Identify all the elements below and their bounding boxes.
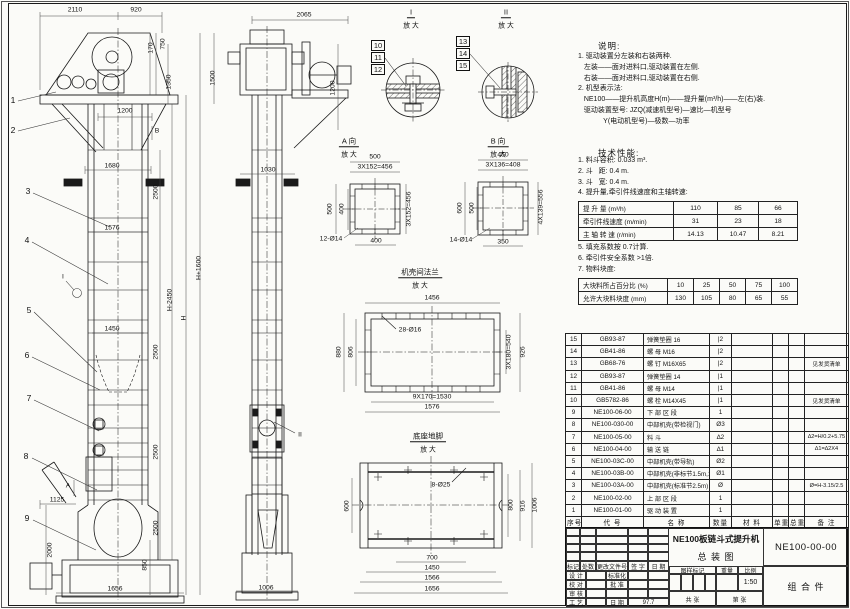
label-sign: 签 字	[628, 561, 648, 571]
dim-label: 1450	[104, 327, 119, 334]
stamp-cell	[693, 574, 705, 591]
title-block: 标记 处数 更改文件号 签 字 日 期 设 计 标准化 校 对 批 准 审 核 …	[565, 527, 848, 606]
dim-label: H	[182, 316, 189, 321]
bom-qty: 1	[710, 407, 732, 419]
bom-code: NE100-030-00	[582, 419, 644, 431]
dim-label: 1125	[50, 498, 65, 505]
row-label: 提 升 量 (m³/h)	[579, 202, 674, 215]
bom-remark	[805, 407, 849, 419]
bom-qty: Ø3	[710, 419, 732, 431]
dim-label: 2110	[68, 8, 83, 15]
bom-name: 弹簧垫圈 16	[644, 334, 710, 346]
dim-label: 1680	[104, 164, 119, 171]
sign-cell	[606, 589, 628, 598]
bom-row: 13 GB68-76 螺 钉 M16X65 |2 见发货清单	[566, 358, 849, 370]
sign-cell	[628, 589, 648, 598]
lump-size-row: 大块料所占百分比 (%) 10 25 50 75 100	[579, 279, 798, 292]
bom-row: 6 NE100-04-00 输 送 链 ∆1 ∆1=∆2X4	[566, 443, 849, 455]
bom-code: NE100-04-00	[582, 443, 644, 455]
dim-label: 1200	[117, 109, 132, 116]
dim-label: H+1600	[197, 256, 204, 280]
dim-label: 放 大	[498, 24, 513, 31]
bom-total-weight	[789, 334, 805, 346]
dim-label: 1576	[104, 226, 119, 233]
callout-box-number: 15	[456, 60, 470, 71]
bom-name: 螺 钉 M16X65	[644, 358, 710, 370]
bom-no: 10	[566, 394, 582, 406]
sign-cell	[648, 580, 669, 589]
bom-name: 螺 母 M14	[644, 382, 710, 394]
sign-cell	[628, 580, 648, 589]
label-check: 校 对	[566, 580, 586, 589]
bom-material	[732, 394, 773, 406]
dim-label: 800	[509, 499, 516, 510]
drawing-sheet: 2110920170750135015001200B168025001576H+…	[0, 0, 850, 609]
tech-item: 6. 牵引件安全系数 >1倍.	[578, 254, 844, 265]
bom-total-weight	[789, 492, 805, 504]
detail-i-view	[381, 58, 445, 122]
dim-label: 850	[143, 559, 150, 570]
bom-remark	[805, 492, 849, 504]
bom-row: 11 GB41-86 螺 母 M14 |1	[566, 382, 849, 394]
balloon-number: 8	[24, 452, 29, 461]
rev-cell	[580, 552, 596, 561]
balloon-number: 7	[27, 394, 32, 403]
bom-total-weight	[789, 468, 805, 480]
value-cell: 80	[720, 292, 746, 305]
note-line: Y(电动机型号)—极数—功率	[578, 117, 844, 128]
dim-label: 920	[130, 8, 141, 15]
bom-material	[732, 358, 773, 370]
dim-label: 450	[497, 153, 508, 160]
bom-no: 13	[566, 358, 582, 370]
dim-label: 1500	[211, 70, 218, 85]
row-label: 牵引件线速度 (m/min)	[579, 215, 674, 228]
bom-remark: ∆1=∆2X4	[805, 443, 849, 455]
bom-no: 2	[566, 492, 582, 504]
dim-label: 600	[345, 500, 352, 511]
rev-cell	[596, 552, 628, 561]
view-label: I	[407, 8, 415, 18]
label-approve: 批 准	[606, 580, 628, 589]
bom-unit-weight	[773, 407, 789, 419]
casing-flange-view	[358, 306, 508, 400]
row-label: 大块料所占百分比 (%)	[579, 279, 668, 292]
value-cell: 100	[772, 279, 798, 292]
dim-label: 3X152=456	[407, 192, 414, 227]
dim-label: 1200	[331, 80, 338, 95]
bom-code: GB93-87	[582, 370, 644, 382]
dim-label: A	[66, 484, 71, 491]
dim-label: 1576	[424, 405, 439, 412]
bom-unit-weight	[773, 455, 789, 467]
bom-unit-weight	[773, 346, 789, 358]
dim-label: 2500	[154, 184, 161, 199]
callout-box-number: 14	[456, 48, 470, 59]
dim-label: 916	[521, 500, 528, 511]
dim-label: 500	[470, 202, 477, 213]
dim-label: 1566	[424, 576, 439, 583]
bom-total-weight	[789, 407, 805, 419]
dim-label: 3X180=540	[507, 335, 514, 370]
rev-cell	[596, 536, 628, 544]
bom-qty: |2	[710, 358, 732, 370]
dim-label: B	[155, 129, 160, 136]
bom-unit-weight	[773, 419, 789, 431]
bom-total-weight	[789, 455, 805, 467]
bom-row: 4 NE100-03B-00 中部机壳(非标节1.5m,1m) Ø1	[566, 468, 849, 480]
bom-total-weight	[789, 346, 805, 358]
bom-code: GB68-76	[582, 358, 644, 370]
bom-name: 中部机壳(带检视门)	[644, 419, 710, 431]
callout-box-number: 10	[371, 40, 385, 51]
bom-unit-weight	[773, 443, 789, 455]
front-elevation-view	[30, 28, 184, 603]
rev-cell	[566, 544, 580, 552]
bom-code: NE100-03C-00	[582, 455, 644, 467]
scale-value: 1:50	[738, 574, 763, 591]
dim-label: 350	[497, 240, 508, 247]
bom-total-weight	[789, 382, 805, 394]
label-sheets: 共 张	[669, 591, 716, 607]
dim-label: 1656	[424, 587, 439, 594]
value-cell: 105	[694, 292, 720, 305]
balloon-number: 6	[25, 351, 30, 360]
bom-remark: 见发货清单	[805, 358, 849, 370]
bom-total-weight	[789, 504, 805, 516]
bom-total-weight	[789, 394, 805, 406]
value-cell: 14.13	[674, 228, 718, 241]
value-cell: 130	[668, 292, 694, 305]
value-cell: 85	[718, 202, 759, 215]
note-line: 2. 机型表示法:	[578, 84, 844, 95]
callout-box-number: 11	[371, 52, 385, 63]
dim-label: 4X139=556	[539, 190, 546, 225]
dim-label: 500	[328, 203, 335, 214]
label-change-doc: 更改文件号	[596, 561, 628, 571]
bom-name: 弹簧垫圈 14	[644, 370, 710, 382]
dim-label: 806	[349, 346, 356, 357]
bom-unit-weight	[773, 394, 789, 406]
dim-label: 600	[458, 202, 465, 213]
bom-remark	[805, 370, 849, 382]
dim-label: 2065	[296, 13, 311, 20]
capacity-row: 主 轴 转 速 (r/min) 14.13 10.47 8.21	[579, 228, 798, 241]
bom-unit-weight	[773, 504, 789, 516]
dim-label: I	[62, 275, 64, 282]
tech-item: 2. 斗 距: 0.4 m.	[578, 167, 844, 178]
bom-qty: |1	[710, 394, 732, 406]
drawing-number: NE100-00-00	[763, 528, 849, 566]
dim-label: 28-Ø16	[399, 328, 422, 335]
stamp-cell	[681, 574, 693, 591]
bom-no: 6	[566, 443, 582, 455]
bom-row: 8 NE100-030-00 中部机壳(带检视门) Ø3	[566, 419, 849, 431]
bom-row: 14 GB41-86 螺 母 M16 |2	[566, 346, 849, 358]
bom-row: 1 NE100-01-00 驱 动 装 置 1	[566, 504, 849, 516]
bom-no: 12	[566, 370, 582, 382]
label-stamp: 图样标记	[669, 566, 716, 574]
label-audit: 审 核	[566, 589, 586, 598]
rev-cell	[628, 552, 648, 561]
value-cell: 8.21	[759, 228, 798, 241]
bom-row: 7 NE100-05-00 料 斗 ∆2 ∆2=H/0.2+5.75	[566, 431, 849, 443]
balloon-number: 4	[25, 236, 30, 245]
bom-unit-weight	[773, 370, 789, 382]
bom-total-weight	[789, 419, 805, 431]
sign-cell	[648, 589, 669, 598]
label-craft: 工 艺	[566, 598, 586, 607]
bom-no: 11	[566, 382, 582, 394]
dim-label: 14-Ø14	[450, 238, 473, 245]
rev-cell	[628, 544, 648, 552]
bom-no: 15	[566, 334, 582, 346]
bom-code: NE100-05-00	[582, 431, 644, 443]
bom-no: 7	[566, 431, 582, 443]
bom-qty: |2	[710, 334, 732, 346]
bom-qty: Ø	[710, 480, 732, 492]
bom-no: 9	[566, 407, 582, 419]
bom-name: 料 斗	[644, 431, 710, 443]
bom-code: NE100-03A-00	[582, 480, 644, 492]
bom-total-weight	[789, 370, 805, 382]
label-design: 设 计	[566, 571, 586, 580]
bom-name: 上 部 区 段	[644, 492, 710, 504]
bom-code: GB41-86	[582, 382, 644, 394]
bom-material	[732, 370, 773, 382]
bom-row: 3 NE100-03A-00 中部机壳(标准节2.5m) Ø Ø=H-3.15/…	[566, 480, 849, 492]
bom-remark	[805, 382, 849, 394]
capacity-table: 提 升 量 (m³/h) 110 85 66 牵引件线速度 (m/min) 31…	[578, 201, 798, 241]
sign-cell	[586, 580, 606, 589]
bom-code: NE100-06-00	[582, 407, 644, 419]
dim-label: 8-Ø25	[432, 483, 451, 490]
tech-item: 1. 料斗容积: 0.033 m³.	[578, 156, 844, 167]
detail-ii-view	[478, 62, 538, 122]
bom-material	[732, 480, 773, 492]
bom-code: NE100-01-00	[582, 504, 644, 516]
label-standardization: 标准化	[606, 571, 628, 580]
dim-label: 9X170=1530	[413, 395, 452, 402]
notes-heading: 说明:	[598, 40, 620, 52]
note-line: 1. 驱动装置分左装和右装两种.	[578, 52, 844, 63]
bom-name: 螺 母 M16	[644, 346, 710, 358]
dim-label: 1456	[424, 296, 439, 303]
value-cell: 23	[718, 215, 759, 228]
bom-qty: |1	[710, 382, 732, 394]
bom-qty: Ø1	[710, 468, 732, 480]
bom-remark	[805, 334, 849, 346]
value-cell: 110	[674, 202, 718, 215]
value-cell: 31	[674, 215, 718, 228]
bom-name: 下 部 区 段	[644, 407, 710, 419]
bom-code: GB93-87	[582, 334, 644, 346]
capacity-row: 牵引件线速度 (m/min) 31 23 18	[579, 215, 798, 228]
bom-total-weight	[789, 480, 805, 492]
bom-no: 14	[566, 346, 582, 358]
rev-cell	[566, 552, 580, 561]
dim-label: 2500	[154, 520, 161, 535]
rev-cell	[648, 528, 669, 536]
note-line: 右装——面对进料口,驱动装置在右侧.	[578, 74, 844, 85]
sign-cell	[586, 571, 606, 580]
dim-label: 2500	[154, 344, 161, 359]
product-name: NE100板链斗式提升机	[669, 530, 763, 548]
rev-cell	[596, 528, 628, 536]
label-count: 处数	[580, 561, 596, 571]
view-label: 机壳间法兰	[398, 268, 442, 278]
label-scale: 比例	[738, 566, 763, 574]
dim-label: 750	[161, 38, 168, 49]
balloon-number: 3	[26, 187, 31, 196]
bom-no: 8	[566, 419, 582, 431]
bom-name: 中部机壳(标准节2.5m)	[644, 480, 710, 492]
bom-material	[732, 468, 773, 480]
dim-label: 1006	[533, 497, 540, 512]
dim-label: 3X136=408	[486, 163, 521, 170]
bom-code: GB5782-86	[582, 394, 644, 406]
dim-label: 926	[521, 346, 528, 357]
dim-label: 2000	[48, 542, 55, 557]
rev-cell	[648, 544, 669, 552]
value-cell: 66	[759, 202, 798, 215]
bom-material	[732, 419, 773, 431]
value-cell: 65	[746, 292, 772, 305]
value-cell: 75	[746, 279, 772, 292]
dim-label: 放 大	[420, 448, 435, 455]
sign-cell	[628, 571, 648, 580]
bom-unit-weight	[773, 480, 789, 492]
bom-remark	[805, 419, 849, 431]
bom-name: 中部机壳(非标节1.5m,1m)	[644, 468, 710, 480]
label-date: 日 期	[648, 561, 669, 571]
callout-box-number: 13	[456, 36, 470, 47]
balloon-number: 1	[11, 96, 16, 105]
bom-no: 1	[566, 504, 582, 516]
stamp-cell	[705, 574, 716, 591]
bom-qty: Ø2	[710, 455, 732, 467]
dim-label: 700	[426, 556, 437, 563]
bom-unit-weight	[773, 334, 789, 346]
row-label: 主 轴 转 速 (r/min)	[579, 228, 674, 241]
dim-label: 放 大	[403, 24, 418, 31]
rev-cell	[628, 528, 648, 536]
dim-label: 1656	[107, 587, 122, 594]
bom-row: 9 NE100-06-00 下 部 区 段 1	[566, 407, 849, 419]
rev-cell	[596, 544, 628, 552]
rev-cell	[648, 536, 669, 544]
bom-material	[732, 382, 773, 394]
bom-qty: ∆2	[710, 431, 732, 443]
bom-remark: ∆2=H/0.2+5.75	[805, 431, 849, 443]
value-cell: 18	[759, 215, 798, 228]
bom-remark: Ø=H-3.15/2.5	[805, 480, 849, 492]
bom-code: NE100-02-00	[582, 492, 644, 504]
view-label: A 向	[339, 137, 359, 147]
view-label: II	[501, 8, 511, 18]
bom-material	[732, 346, 773, 358]
rev-cell	[628, 536, 648, 544]
label-mark: 标记	[566, 561, 580, 571]
weight-cell	[716, 574, 738, 591]
bom-remark	[805, 468, 849, 480]
sign-cell	[648, 571, 669, 580]
capacity-row: 提 升 量 (m³/h) 110 85 66	[579, 202, 798, 215]
bom-no: 4	[566, 468, 582, 480]
lump-size-row: 允许大块料块度 (mm) 130 105 80 65 55	[579, 292, 798, 305]
bom-row: 10 GB5782-86 螺 栓 M14X45 |1 见发货清单	[566, 394, 849, 406]
tech-items-before: 1. 料斗容积: 0.033 m³.2. 斗 距: 0.4 m.3. 斗 宽: …	[578, 156, 844, 199]
bom-qty: 1	[710, 504, 732, 516]
notes-text: 1. 驱动装置分左装和右装两种. 左装——面对进料口,驱动装置在左侧. 右装——…	[578, 52, 844, 128]
b-view-flange	[472, 176, 534, 241]
bom-code: GB41-86	[582, 346, 644, 358]
rev-cell	[648, 552, 669, 561]
drawing-title: 总 装 图	[669, 548, 763, 564]
dim-label: 放 大	[341, 153, 356, 160]
bom-material	[732, 334, 773, 346]
bom-remark	[805, 346, 849, 358]
rev-cell	[580, 536, 596, 544]
balloon-number: 9	[25, 514, 30, 523]
note-line: 驱动装置型号: JZQ(减速机型号)—速比—机型号	[578, 106, 844, 117]
bom-total-weight	[789, 358, 805, 370]
bom-unit-weight	[773, 492, 789, 504]
a-view-flange	[344, 178, 406, 240]
label-date2: 日 期	[606, 598, 628, 607]
sign-cell	[586, 589, 606, 598]
dim-label: H-2450	[168, 289, 175, 311]
bom-table: 15 GB93-87 弹簧垫圈 16 |2 14 GB41-86 螺 母 M16…	[565, 333, 849, 529]
base-anchor-view	[352, 456, 510, 556]
view-label: 底座地脚	[410, 432, 446, 442]
value-cell: 10.47	[718, 228, 759, 241]
bom-qty: |1	[710, 370, 732, 382]
rev-cell	[566, 536, 580, 544]
dim-label: 1450	[424, 566, 439, 573]
tech-items-after: 5. 填充系数按 0.7计算.6. 牵引件安全系数 >1倍.7. 物料块度:	[578, 243, 844, 275]
dim-label: 400	[370, 239, 381, 246]
bom-qty: ∆1	[710, 443, 732, 455]
label-page: 第 张	[716, 591, 763, 607]
row-label: 允许大块料块度 (mm)	[579, 292, 668, 305]
side-elevation-view	[228, 26, 351, 600]
bom-name: 螺 栓 M14X45	[644, 394, 710, 406]
dim-label: 2500	[154, 444, 161, 459]
bom-material	[732, 407, 773, 419]
bom-code: NE100-03B-00	[582, 468, 644, 480]
lump-size-table: 大块料所占百分比 (%) 10 25 50 75 100 允许大块料块度 (mm…	[578, 278, 798, 305]
bom-unit-weight	[773, 468, 789, 480]
bom-remark	[805, 455, 849, 467]
bom-total-weight	[789, 443, 805, 455]
value-cell: 25	[694, 279, 720, 292]
label-weight: 重量	[716, 566, 738, 574]
dim-label: 880	[337, 346, 344, 357]
bom-remark: 见发货清单	[805, 394, 849, 406]
dim-label: 12-Ø14	[320, 237, 343, 244]
value-cell: 50	[720, 279, 746, 292]
dim-label: II	[298, 433, 302, 440]
bom-qty: |2	[710, 346, 732, 358]
bom-remark	[805, 504, 849, 516]
tech-item: 3. 斗 宽: 0.4 m.	[578, 178, 844, 189]
value-cell: 10	[668, 279, 694, 292]
note-line: NE100——提升机高度H(m)——提升量(m³/h)——左(右)装.	[578, 95, 844, 106]
bom-row: 2 NE100-02-00 上 部 区 段 1	[566, 492, 849, 504]
bom-name: 驱 动 装 置	[644, 504, 710, 516]
dim-label: 放 大	[412, 284, 427, 291]
